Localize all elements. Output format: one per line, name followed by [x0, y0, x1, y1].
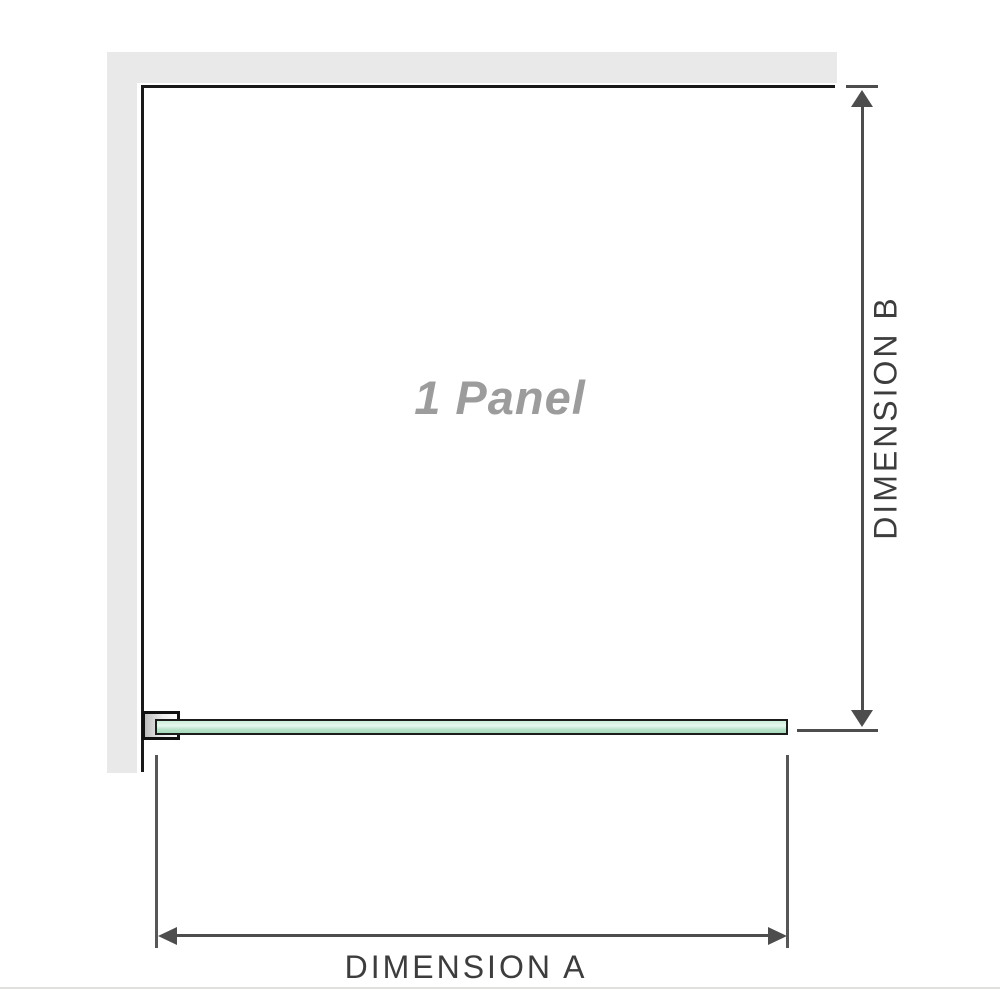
enclosure-outline-left: [141, 85, 144, 772]
dimension-b-label: DIMENSION B: [868, 278, 905, 558]
dimension-b-arrowhead-up: [851, 90, 873, 107]
dimension-b-line: [861, 100, 864, 717]
diagram-canvas: { "diagram": { "panel_label": "1 Panel",…: [0, 0, 1000, 1000]
dimension-a-line: [170, 934, 775, 937]
dimension-a-extension-line-right: [786, 755, 789, 948]
panel-count-label: 1 Panel: [350, 370, 650, 425]
wall-left-segment: [107, 52, 137, 773]
dimension-a-label: DIMENSION A: [316, 949, 616, 986]
enclosure-outline-top: [141, 85, 835, 88]
dimension-a-extension-line-left: [155, 755, 158, 948]
dimension-b-tick-top: [846, 85, 878, 88]
glass-panel: [155, 719, 788, 735]
dimension-b-arrowhead-down: [851, 710, 873, 727]
dimension-a-arrowhead-left: [158, 927, 177, 945]
page-divider-line: [0, 987, 1000, 989]
dimension-b-tick-bottom: [797, 729, 878, 732]
dimension-a-arrowhead-right: [768, 927, 787, 945]
wall-top-segment: [107, 52, 837, 83]
